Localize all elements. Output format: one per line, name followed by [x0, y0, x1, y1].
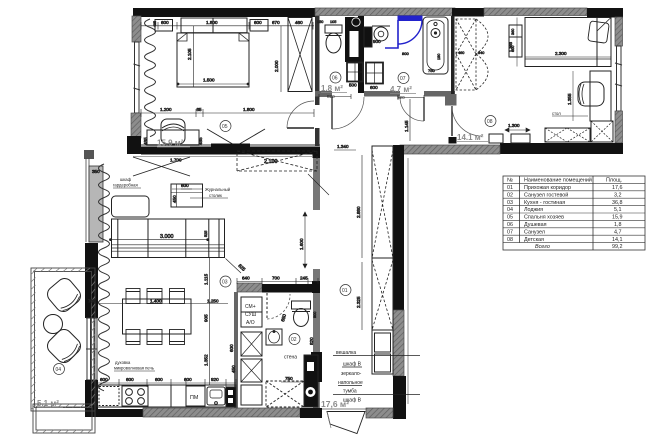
svg-text:4,7: 4,7: [614, 229, 622, 235]
svg-text:08: 08: [487, 119, 493, 125]
svg-text:450: 450: [172, 195, 177, 203]
svg-text:Всего: Всего: [535, 244, 550, 250]
svg-text:600: 600: [155, 377, 163, 382]
svg-text:02: 02: [507, 192, 513, 198]
svg-text:36,8: 36,8: [612, 200, 623, 206]
svg-text:гардеробная: гардеробная: [113, 183, 138, 188]
svg-text:стол: стол: [552, 111, 561, 116]
svg-text:ПМ: ПМ: [190, 395, 199, 401]
svg-text:460: 460: [295, 20, 303, 25]
svg-text:485: 485: [198, 137, 203, 145]
svg-text:820: 820: [397, 95, 405, 100]
svg-text:1.200: 1.200: [160, 107, 172, 112]
svg-text:1.352: 1.352: [204, 354, 209, 366]
svg-text:460: 460: [458, 51, 464, 55]
svg-text:1.800: 1.800: [243, 107, 255, 112]
svg-text:85: 85: [197, 107, 203, 112]
svg-text:07: 07: [400, 76, 406, 82]
svg-text:1.500: 1.500: [203, 78, 215, 83]
svg-text:435: 435: [153, 21, 157, 27]
svg-text:1.700: 1.700: [170, 158, 182, 163]
svg-text:105: 105: [330, 20, 336, 24]
svg-text:1,8: 1,8: [614, 222, 622, 228]
svg-text:500: 500: [349, 83, 357, 88]
svg-text:750: 750: [285, 376, 293, 381]
svg-text:СУШ: СУШ: [245, 312, 257, 318]
svg-text:2.325: 2.325: [356, 296, 361, 308]
svg-text:2.000: 2.000: [274, 60, 279, 72]
svg-text:900: 900: [313, 312, 317, 318]
svg-text:Кухня - гостиная: Кухня - гостиная: [524, 200, 565, 206]
svg-text:08: 08: [507, 237, 513, 243]
svg-text:1.300: 1.300: [508, 123, 520, 128]
svg-text:тумба: тумба: [343, 389, 357, 395]
svg-text:600: 600: [184, 377, 192, 382]
svg-text:напольное: напольное: [338, 380, 363, 386]
svg-text:06: 06: [507, 222, 513, 228]
svg-text:820: 820: [309, 337, 314, 345]
svg-text:15,9: 15,9: [612, 215, 623, 221]
svg-text:525: 525: [204, 231, 208, 237]
svg-text:духовка: духовка: [115, 360, 131, 365]
svg-text:Спальня хозяев: Спальня хозяев: [524, 215, 564, 221]
svg-text:350: 350: [92, 169, 100, 174]
svg-text:1.250: 1.250: [207, 299, 219, 304]
svg-text:14,1: 14,1: [612, 237, 623, 243]
svg-text:920: 920: [211, 377, 219, 382]
svg-text:1.115: 1.115: [204, 273, 209, 285]
svg-text:905: 905: [204, 314, 209, 322]
svg-text:600: 600: [161, 20, 169, 25]
svg-text:450: 450: [231, 365, 236, 373]
svg-text:04: 04: [507, 207, 513, 213]
svg-text:02: 02: [291, 337, 297, 343]
svg-text:03: 03: [222, 280, 228, 286]
svg-text:900: 900: [373, 39, 381, 44]
svg-text:Журнальный: Журнальный: [205, 187, 231, 192]
svg-text:190: 190: [437, 54, 441, 60]
svg-text:600: 600: [229, 344, 234, 352]
svg-text:Прихожая коридор: Прихожая коридор: [524, 185, 571, 191]
svg-text:А/О: А/О: [246, 320, 255, 326]
svg-text:1.145: 1.145: [404, 120, 409, 132]
svg-text:стена: стена: [284, 355, 297, 361]
svg-text:Санузел: Санузел: [524, 229, 545, 235]
svg-text:800: 800: [402, 51, 409, 56]
svg-text:99,2: 99,2: [612, 244, 623, 250]
svg-text:4.7 м²: 4.7 м²: [390, 85, 412, 94]
svg-text:15.9 м²: 15.9 м²: [157, 139, 184, 148]
svg-text:2.300: 2.300: [555, 51, 567, 56]
svg-text:Санузел гостевой: Санузел гостевой: [524, 191, 568, 198]
svg-text:760: 760: [88, 299, 96, 304]
svg-text:01: 01: [507, 185, 513, 191]
svg-text:640: 640: [242, 276, 250, 281]
svg-text:05: 05: [507, 215, 513, 221]
svg-text:3.000: 3.000: [160, 234, 174, 240]
svg-text:01: 01: [342, 288, 348, 294]
svg-text:шкаф В: шкаф В: [343, 362, 362, 368]
svg-text:Лоджия: Лоджия: [524, 207, 543, 213]
svg-text:1.800: 1.800: [206, 20, 218, 25]
svg-text:150: 150: [317, 20, 323, 24]
svg-text:1.365: 1.365: [508, 41, 513, 52]
svg-text:14.1 м²: 14.1 м²: [457, 133, 484, 142]
svg-text:Детская: Детская: [524, 237, 544, 243]
svg-text:600: 600: [370, 85, 378, 90]
svg-text:2.100: 2.100: [264, 159, 278, 165]
svg-text:1.8 м²: 1.8 м²: [321, 84, 343, 93]
svg-text:1.355: 1.355: [567, 93, 572, 105]
svg-text:1.400: 1.400: [150, 299, 162, 304]
svg-text:микроволновая печь: микроволновая печь: [114, 366, 155, 371]
svg-text:820: 820: [327, 94, 335, 99]
svg-text:3,2: 3,2: [614, 192, 622, 198]
svg-text:вешалка: вешалка: [336, 350, 356, 356]
svg-text:670: 670: [272, 20, 280, 25]
svg-text:04: 04: [56, 367, 62, 373]
svg-text:940: 940: [478, 51, 484, 55]
svg-text:600: 600: [254, 20, 262, 25]
svg-text:Наименование помещений: Наименование помещений: [524, 177, 592, 184]
svg-text:750: 750: [428, 68, 435, 73]
svg-text:1.600: 1.600: [299, 238, 304, 250]
svg-text:700: 700: [272, 276, 280, 281]
svg-text:07: 07: [507, 229, 513, 235]
svg-text:485: 485: [143, 137, 148, 145]
svg-text:СМ+: СМ+: [245, 304, 256, 310]
svg-text:№: №: [507, 178, 513, 184]
svg-text:17,6: 17,6: [612, 185, 623, 191]
svg-text:600: 600: [181, 183, 189, 188]
svg-text:245: 245: [300, 276, 308, 281]
svg-text:шкаф: шкаф: [120, 177, 132, 182]
svg-text:600: 600: [100, 377, 108, 382]
svg-text:5.1 м²: 5.1 м²: [37, 399, 59, 408]
svg-text:06: 06: [332, 76, 338, 82]
svg-text:03: 03: [507, 200, 513, 206]
svg-text:1.340: 1.340: [337, 144, 349, 149]
svg-text:5,1: 5,1: [614, 207, 622, 213]
svg-text:2.880: 2.880: [356, 206, 361, 218]
svg-text:шкаф В: шкаф В: [343, 398, 362, 404]
svg-text:600: 600: [126, 377, 134, 382]
svg-text:столик: столик: [209, 193, 222, 198]
svg-text:зеркало-: зеркало-: [341, 371, 362, 377]
svg-text:2.105: 2.105: [187, 48, 192, 60]
svg-text:Душевая: Душевая: [524, 222, 547, 228]
svg-text:360: 360: [511, 29, 515, 35]
svg-text:05: 05: [222, 124, 228, 130]
svg-text:Площ.: Площ.: [606, 178, 622, 184]
